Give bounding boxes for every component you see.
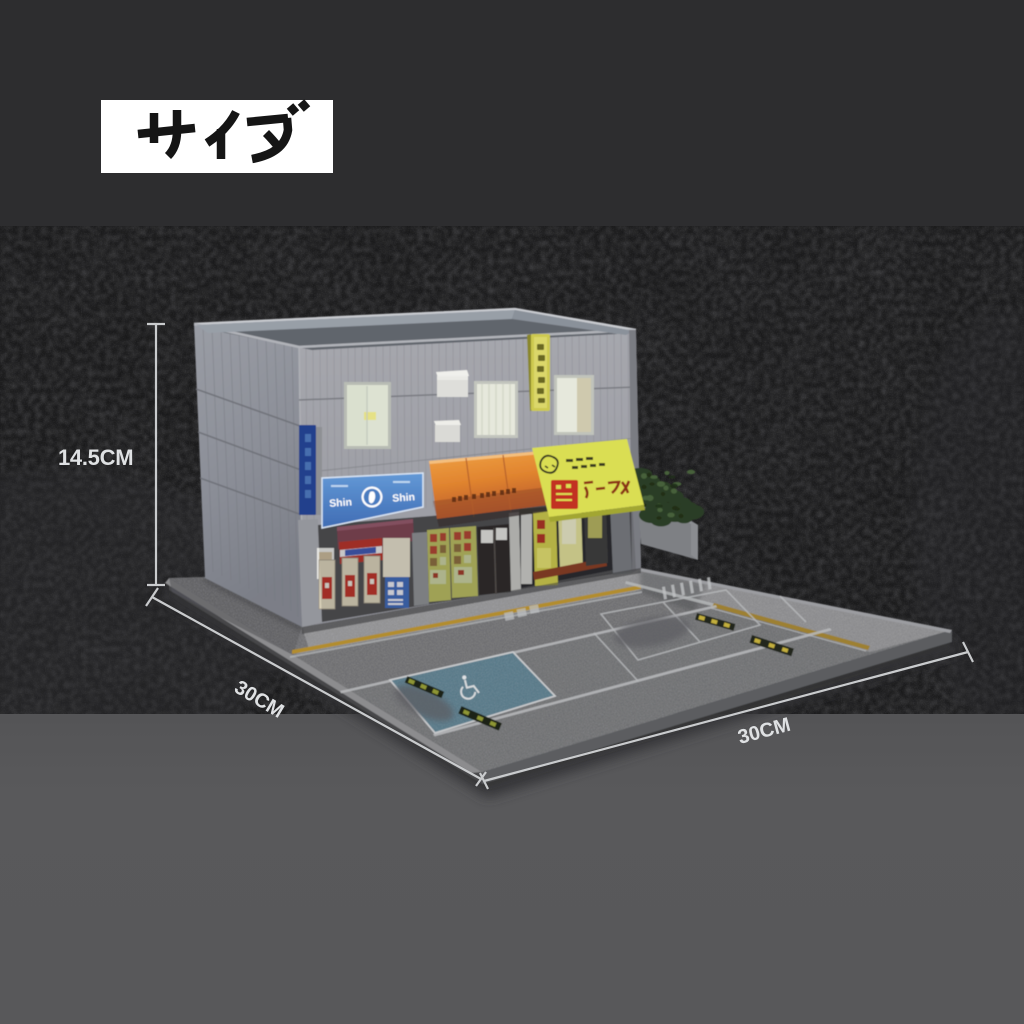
svg-text:Shin: Shin bbox=[392, 491, 416, 505]
svg-text:14.5CM: 14.5CM bbox=[58, 445, 133, 470]
svg-text:Shin: Shin bbox=[329, 496, 353, 510]
